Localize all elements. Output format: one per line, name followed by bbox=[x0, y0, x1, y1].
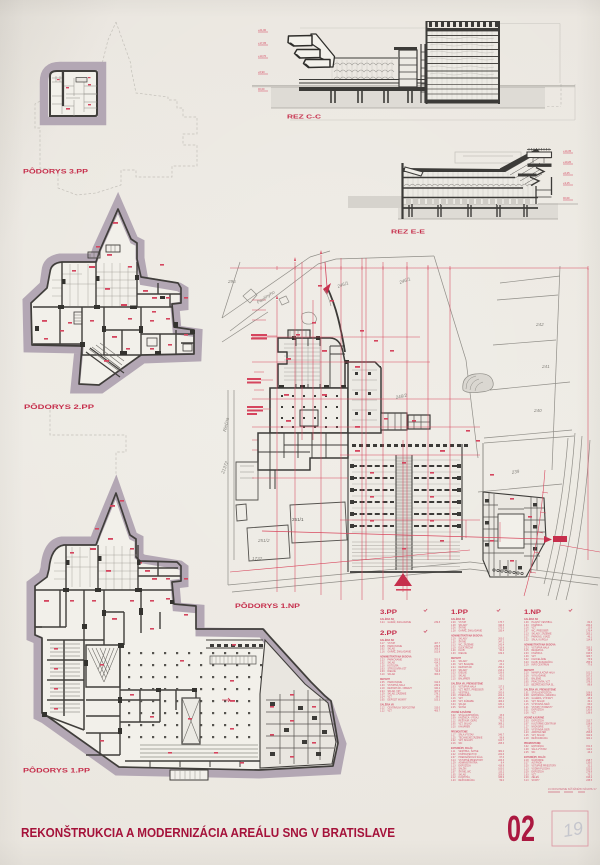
svg-text:NÁDVORIE: NÁDVORIE bbox=[532, 759, 544, 762]
svg-text:DIELNE: DIELNE bbox=[388, 671, 397, 673]
svg-text:SKLAD, VZT: SKLAD, VZT bbox=[388, 690, 402, 693]
svg-text:ADMINISTRATÍVNA BUDOVA: ADMINISTRATÍVNA BUDOVA bbox=[451, 635, 483, 638]
svg-text:+13,70: +13,70 bbox=[258, 54, 267, 58]
svg-text:3.21: 3.21 bbox=[524, 710, 529, 712]
svg-text:PÔDORYS 1.NP: PÔDORYS 1.NP bbox=[235, 601, 301, 610]
svg-text:GALÉRIA SO: GALÉRIA SO bbox=[380, 639, 394, 642]
svg-text:EXPOZÍCIA: EXPOZÍCIA bbox=[532, 770, 545, 773]
svg-text:PARKOVANIE: PARKOVANIE bbox=[388, 681, 403, 684]
svg-text:VODNÉ KASÁRNE: VODNÉ KASÁRNE bbox=[524, 717, 545, 720]
svg-text:1.29: 1.29 bbox=[451, 763, 456, 765]
svg-text:SKLAD: SKLAD bbox=[388, 673, 396, 676]
svg-text:268.3: 268.3 bbox=[498, 743, 504, 745]
svg-text:VZT, SKLAD: VZT, SKLAD bbox=[532, 734, 545, 737]
svg-text:2.13: 2.13 bbox=[451, 670, 456, 672]
svg-text:EXTERIÉRY, PALÁC: EXTERIÉRY, PALÁC bbox=[524, 756, 546, 759]
svg-text:3.01: 3.01 bbox=[451, 692, 456, 694]
svg-text:241: 241 bbox=[541, 364, 550, 369]
svg-text:2.16: 2.16 bbox=[451, 743, 456, 745]
svg-text:222.1: 222.1 bbox=[498, 695, 504, 697]
svg-text:VODNÉ KASÁRNE: VODNÉ KASÁRNE bbox=[451, 711, 472, 714]
svg-text:3.05: 3.05 bbox=[380, 646, 385, 648]
svg-text:DEPOZIT: DEPOZIT bbox=[451, 658, 462, 660]
svg-text:+10,20: +10,20 bbox=[563, 160, 572, 164]
svg-text:SKLADY: SKLADY bbox=[459, 660, 469, 663]
svg-text:WC: WC bbox=[532, 752, 536, 754]
svg-text:246/1: 246/1 bbox=[398, 276, 412, 285]
svg-text:2.03: 2.03 bbox=[524, 653, 529, 655]
svg-text:1.08: 1.08 bbox=[451, 701, 456, 703]
svg-text:VZT, ZÁZEMIE: VZT, ZÁZEMIE bbox=[459, 700, 475, 703]
svg-text:2.24: 2.24 bbox=[451, 667, 456, 669]
svg-text:76.3: 76.3 bbox=[500, 721, 505, 723]
svg-text:DEPOZITÁR: DEPOZITÁR bbox=[459, 666, 472, 669]
svg-text:336.9: 336.9 bbox=[498, 777, 504, 779]
svg-text:196.5: 196.5 bbox=[586, 653, 592, 655]
svg-text:167.5: 167.5 bbox=[498, 707, 504, 709]
svg-text:VZT: VZT bbox=[459, 698, 464, 700]
svg-text:251/2: 251/2 bbox=[257, 538, 270, 543]
svg-text:63.0: 63.0 bbox=[588, 704, 593, 706]
svg-text:INFO CENTRUM: INFO CENTRUM bbox=[532, 665, 550, 667]
svg-text:240: 240 bbox=[533, 408, 542, 413]
svg-text:296.1: 296.1 bbox=[498, 667, 504, 669]
svg-text:SKLADY: SKLADY bbox=[459, 638, 469, 641]
svg-text:KLUB: KLUB bbox=[459, 650, 465, 652]
svg-text:326.7: 326.7 bbox=[586, 656, 592, 658]
svg-text:REŠTAURÁCIA: REŠTAURÁCIA bbox=[459, 779, 476, 782]
svg-text:2.19: 2.19 bbox=[524, 665, 529, 667]
svg-text:VZT: VZT bbox=[532, 656, 537, 658]
svg-text:2.03: 2.03 bbox=[524, 721, 529, 723]
svg-text:19 ODOVZDANIE SÚŤAŽNÉHO NÁVR: 19 ODOVZDANIE SÚŤAŽNÉHO NÁVRHU 17 bbox=[548, 788, 597, 791]
svg-text:46.1: 46.1 bbox=[588, 636, 593, 638]
svg-text:2.07: 2.07 bbox=[524, 631, 529, 633]
svg-text:1.01: 1.01 bbox=[524, 692, 529, 694]
svg-text:MANIPULAČNÁ HALA: MANIPULAČNÁ HALA bbox=[532, 672, 556, 675]
svg-text:1.16: 1.16 bbox=[451, 698, 456, 700]
svg-text:RECEPCIA: RECEPCIA bbox=[532, 649, 544, 652]
svg-text:135.0: 135.0 bbox=[586, 763, 592, 765]
svg-text:1.22: 1.22 bbox=[380, 710, 385, 712]
svg-text:KAVIÁREŇ: KAVIÁREŇ bbox=[459, 725, 471, 728]
svg-text:216.8: 216.8 bbox=[498, 647, 504, 649]
svg-text:3.15: 3.15 bbox=[451, 676, 456, 678]
svg-text:PARKING, VJAZD: PARKING, VJAZD bbox=[532, 635, 551, 638]
svg-text:EXPOZÍCIA: EXPOZÍCIA bbox=[459, 765, 472, 768]
svg-text:GARÁŽ, ZAKLADANIE: GARÁŽ, ZAKLADANIE bbox=[459, 630, 483, 633]
svg-text:97.1: 97.1 bbox=[588, 726, 593, 728]
svg-text:GALÉRIA SO: GALÉRIA SO bbox=[524, 618, 538, 621]
svg-text:3.24: 3.24 bbox=[380, 697, 385, 699]
svg-text:EXPOZÍCIA: EXPOZÍCIA bbox=[532, 720, 545, 723]
svg-text:2.19: 2.19 bbox=[451, 639, 456, 641]
svg-text:WC: WC bbox=[459, 743, 463, 745]
svg-text:1.13: 1.13 bbox=[524, 769, 529, 771]
svg-text:3.01: 3.01 bbox=[524, 679, 529, 681]
svg-text:163.2: 163.2 bbox=[434, 668, 440, 670]
svg-text:3.20: 3.20 bbox=[451, 726, 456, 728]
svg-text:2.09: 2.09 bbox=[524, 729, 529, 731]
svg-text:2.26: 2.26 bbox=[451, 628, 456, 630]
svg-text:KNIŽNICA: KNIŽNICA bbox=[532, 624, 543, 627]
svg-text:2.18: 2.18 bbox=[524, 738, 529, 740]
svg-text:73.9: 73.9 bbox=[588, 659, 593, 661]
svg-text:253.8: 253.8 bbox=[586, 732, 592, 734]
svg-text:308.3: 308.3 bbox=[434, 649, 440, 651]
svg-text:SÁLA VÝSTAV: SÁLA VÝSTAV bbox=[459, 733, 475, 736]
svg-text:1.NP: 1.NP bbox=[524, 609, 542, 616]
svg-text:169.3: 169.3 bbox=[498, 653, 504, 655]
svg-text:320.3: 320.3 bbox=[586, 679, 592, 681]
svg-text:NÁDVORIE: NÁDVORIE bbox=[532, 725, 544, 728]
svg-text:VSTUPNÁ HALA: VSTUPNÁ HALA bbox=[532, 646, 550, 649]
svg-text:KUCHYŇA: KUCHYŇA bbox=[459, 776, 471, 779]
svg-text:2.12: 2.12 bbox=[451, 777, 456, 779]
svg-text:151.3: 151.3 bbox=[586, 746, 592, 748]
svg-text:DIELNE: DIELNE bbox=[459, 653, 468, 655]
svg-text:369.1: 369.1 bbox=[498, 724, 504, 726]
svg-text:2.19: 2.19 bbox=[451, 647, 456, 649]
svg-text:396.1: 396.1 bbox=[498, 718, 504, 720]
svg-text:82.3: 82.3 bbox=[588, 622, 593, 624]
svg-text:1.21: 1.21 bbox=[451, 661, 456, 663]
svg-text:+21,00: +21,00 bbox=[258, 28, 267, 32]
svg-text:ŠATŇA: ŠATŇA bbox=[459, 706, 467, 709]
svg-text:KANCELÁRIE: KANCELÁRIE bbox=[532, 658, 547, 661]
svg-text:2.10: 2.10 bbox=[524, 673, 529, 675]
svg-text:322.1: 322.1 bbox=[586, 738, 592, 740]
svg-text:VODNÁ PLOCHA: VODNÁ PLOCHA bbox=[532, 768, 551, 771]
svg-text:176.4: 176.4 bbox=[586, 631, 592, 633]
svg-text:108.6: 108.6 bbox=[586, 692, 592, 694]
svg-text:242.4: 242.4 bbox=[498, 644, 504, 646]
svg-text:EXPOZÍCIA - GRAFIKA: EXPOZÍCIA - GRAFIKA bbox=[532, 694, 557, 697]
svg-text:VSTUPNÁ HALA: VSTUPNÁ HALA bbox=[459, 686, 477, 689]
svg-text:2.20: 2.20 bbox=[451, 695, 456, 697]
svg-text:±0,00: ±0,00 bbox=[563, 196, 570, 200]
svg-text:VSTUPNÉ PRIESTORY: VSTUPNÉ PRIESTORY bbox=[532, 765, 557, 768]
svg-text:KNIŽNICA - VÝDAJ: KNIŽNICA - VÝDAJ bbox=[459, 717, 479, 720]
svg-text:15.6: 15.6 bbox=[500, 715, 505, 717]
svg-text:GALÉRIA VK, PREMOSTENIE: GALÉRIA VK, PREMOSTENIE bbox=[451, 683, 484, 686]
svg-text:SKLAD: SKLAD bbox=[388, 662, 396, 665]
svg-text:2.29: 2.29 bbox=[524, 777, 529, 779]
svg-text:2.22: 2.22 bbox=[451, 740, 456, 742]
svg-text:VZT: VZT bbox=[388, 697, 393, 699]
svg-text:38.0: 38.0 bbox=[436, 697, 441, 699]
svg-text:1.19: 1.19 bbox=[451, 769, 456, 771]
svg-text:2.07: 2.07 bbox=[451, 771, 456, 773]
svg-text:1.27: 1.27 bbox=[524, 726, 529, 728]
svg-text:DIELNE: DIELNE bbox=[459, 673, 468, 675]
svg-text:KOTOLŇA: KOTOLŇA bbox=[388, 664, 399, 667]
svg-text:VZT, REŠT., PREDSIEŇ: VZT, REŠT., PREDSIEŇ bbox=[459, 688, 484, 691]
svg-text:2.09: 2.09 bbox=[451, 718, 456, 720]
svg-text:2.22: 2.22 bbox=[524, 639, 529, 641]
svg-text:279.9: 279.9 bbox=[586, 771, 592, 773]
svg-text:32.1: 32.1 bbox=[588, 701, 593, 703]
svg-text:2.23: 2.23 bbox=[524, 647, 529, 649]
svg-text:34.7: 34.7 bbox=[500, 689, 505, 691]
svg-text:3.23: 3.23 bbox=[451, 673, 456, 675]
svg-text:48.6: 48.6 bbox=[588, 698, 593, 700]
svg-text:1.28: 1.28 bbox=[451, 625, 456, 627]
svg-text:246.7: 246.7 bbox=[498, 734, 504, 736]
svg-text:PRACOVŇA, VZT: PRACOVŇA, VZT bbox=[532, 680, 551, 683]
svg-text:1.PP: 1.PP bbox=[451, 609, 469, 616]
svg-text:2.15: 2.15 bbox=[524, 684, 529, 686]
svg-text:1.04: 1.04 bbox=[524, 625, 529, 627]
svg-text:1.13: 1.13 bbox=[451, 766, 456, 768]
svg-text:REKONŠTRUKCIA A MODERNIZÁCIA A: REKONŠTRUKCIA A MODERNIZÁCIA AREÁLU SNG … bbox=[21, 825, 395, 840]
svg-text:3.05: 3.05 bbox=[524, 681, 529, 683]
svg-text:VZT: VZT bbox=[532, 774, 537, 776]
svg-text:PREMOSTENIE: PREMOSTENIE bbox=[451, 732, 468, 734]
svg-text:3.07: 3.07 bbox=[524, 724, 529, 726]
svg-text:2.03: 2.03 bbox=[380, 671, 385, 673]
svg-text:3.15: 3.15 bbox=[524, 650, 529, 652]
svg-text:VESTIBUL, ŠATNE: VESTIBUL, ŠATNE bbox=[459, 750, 479, 753]
svg-text:112.0: 112.0 bbox=[586, 749, 592, 751]
svg-text:43.4: 43.4 bbox=[588, 752, 593, 754]
svg-text:SKLAD: SKLAD bbox=[388, 648, 396, 651]
svg-text:1.20: 1.20 bbox=[451, 642, 456, 644]
svg-text:1.29: 1.29 bbox=[380, 694, 385, 696]
svg-text:414.2: 414.2 bbox=[434, 663, 440, 665]
svg-text:3.22: 3.22 bbox=[451, 715, 456, 717]
svg-text:3.23: 3.23 bbox=[524, 662, 529, 664]
svg-text:242: 242 bbox=[535, 322, 544, 327]
svg-text:PÔDORYS 2.PP: PÔDORYS 2.PP bbox=[24, 402, 95, 411]
svg-text:PÔDORYS 1.PP: PÔDORYS 1.PP bbox=[23, 766, 91, 775]
svg-text:180.1: 180.1 bbox=[498, 704, 504, 706]
svg-text:2.05: 2.05 bbox=[380, 682, 385, 684]
svg-text:2.12: 2.12 bbox=[380, 708, 385, 710]
svg-text:238.5: 238.5 bbox=[586, 780, 592, 782]
svg-text:23.1: 23.1 bbox=[500, 664, 505, 666]
svg-text:GARÁŽ, ZAKLADANIE: GARÁŽ, ZAKLADANIE bbox=[388, 651, 412, 654]
svg-text:VZT, SKLADY: VZT, SKLADY bbox=[459, 739, 474, 742]
svg-text:1.16: 1.16 bbox=[380, 652, 385, 654]
svg-text:GALÉRIA, VÝSTAVY: GALÉRIA, VÝSTAVY bbox=[532, 697, 554, 700]
svg-text:ADMINISTRATÍVNA BUDOVA: ADMINISTRATÍVNA BUDOVA bbox=[380, 656, 412, 659]
svg-text:1.26: 1.26 bbox=[524, 698, 529, 700]
svg-text:STÁLA EXPOZÍCIA: STÁLA EXPOZÍCIA bbox=[532, 691, 553, 694]
svg-text:EXPOZÍCIA: EXPOZÍCIA bbox=[532, 745, 545, 748]
svg-text:1.09: 1.09 bbox=[524, 622, 529, 624]
svg-text:PREMOSTENIE: PREMOSTENIE bbox=[524, 743, 541, 745]
svg-text:419.9: 419.9 bbox=[498, 766, 504, 768]
svg-text:2.29: 2.29 bbox=[451, 622, 456, 624]
svg-text:31.2: 31.2 bbox=[588, 766, 593, 768]
svg-text:PÔDORYS 3.PP: PÔDORYS 3.PP bbox=[23, 167, 89, 176]
svg-text:342.9: 342.9 bbox=[586, 735, 592, 737]
svg-text:19: 19 bbox=[561, 818, 584, 841]
svg-text:±0,00: ±0,00 bbox=[258, 87, 265, 91]
svg-text:3.02: 3.02 bbox=[380, 649, 385, 651]
svg-text:130.6: 130.6 bbox=[586, 710, 592, 712]
svg-text:+6,90: +6,90 bbox=[258, 70, 265, 74]
svg-text:1.20: 1.20 bbox=[380, 665, 385, 667]
svg-text:295: 295 bbox=[227, 279, 236, 284]
svg-text:3.24: 3.24 bbox=[380, 622, 385, 624]
svg-text:50.4: 50.4 bbox=[500, 650, 505, 652]
svg-text:2.23: 2.23 bbox=[380, 660, 385, 662]
svg-text:02: 02 bbox=[507, 808, 535, 849]
svg-text:12.9: 12.9 bbox=[588, 628, 593, 630]
svg-text:98.8: 98.8 bbox=[500, 737, 505, 739]
svg-text:VSTUPY, PODESTY: VSTUPY, PODESTY bbox=[532, 707, 554, 709]
svg-text:152.5: 152.5 bbox=[586, 769, 592, 771]
svg-text:379.3: 379.3 bbox=[586, 681, 592, 683]
svg-text:PREDNÁŠKOVÁ SÁLA: PREDNÁŠKOVÁ SÁLA bbox=[459, 756, 483, 759]
svg-text:255.9: 255.9 bbox=[586, 662, 592, 664]
svg-text:3.13: 3.13 bbox=[451, 644, 456, 646]
svg-text:115.2: 115.2 bbox=[498, 771, 504, 773]
svg-text:1.12: 1.12 bbox=[451, 721, 456, 723]
svg-text:ŠATNE: ŠATNE bbox=[459, 627, 467, 630]
svg-text:3.14: 3.14 bbox=[451, 760, 456, 762]
svg-text:SOCHY: SOCHY bbox=[532, 780, 541, 782]
svg-text:270.4: 270.4 bbox=[498, 661, 504, 663]
svg-text:3.05: 3.05 bbox=[380, 700, 385, 702]
svg-text:3.17: 3.17 bbox=[524, 636, 529, 638]
svg-text:+17,05: +17,05 bbox=[258, 41, 267, 45]
svg-text:209.9: 209.9 bbox=[498, 774, 504, 776]
svg-text:3.10: 3.10 bbox=[380, 674, 385, 676]
svg-text:SKLAD: SKLAD bbox=[459, 773, 467, 776]
svg-text:2.24: 2.24 bbox=[380, 691, 385, 693]
svg-text:GALÉRIA VK, PREMOSTENIE: GALÉRIA VK, PREMOSTENIE bbox=[524, 688, 557, 691]
svg-text:246/1: 246/1 bbox=[336, 280, 350, 289]
svg-text:3.26: 3.26 bbox=[524, 676, 529, 678]
svg-text:2.25: 2.25 bbox=[451, 707, 456, 709]
svg-text:234.4: 234.4 bbox=[586, 625, 592, 627]
svg-text:333.3: 333.3 bbox=[586, 647, 592, 649]
svg-text:SKLADY: SKLADY bbox=[459, 624, 469, 627]
svg-text:SÁLA VÝSTAV: SÁLA VÝSTAV bbox=[532, 748, 548, 751]
svg-text:3.17: 3.17 bbox=[380, 643, 385, 645]
svg-text:VSTUPNÉ PRIESTORY: VSTUPNÉ PRIESTORY bbox=[459, 759, 484, 762]
svg-text:KULTÚRNE CENTRUM: KULTÚRNE CENTRUM bbox=[532, 723, 556, 726]
svg-text:114.9: 114.9 bbox=[586, 639, 592, 641]
svg-text:1.17: 1.17 bbox=[451, 734, 456, 736]
svg-text:PARKOVANIE: PARKOVANIE bbox=[388, 659, 403, 662]
svg-text:101.2: 101.2 bbox=[586, 673, 592, 675]
svg-text:ZELEŇ: ZELEŇ bbox=[532, 776, 540, 779]
svg-text:213.1: 213.1 bbox=[498, 670, 504, 672]
svg-text:1.08: 1.08 bbox=[524, 749, 529, 751]
svg-text:358.0: 358.0 bbox=[498, 679, 504, 681]
svg-text:REZ E-E: REZ E-E bbox=[391, 230, 425, 236]
svg-text:AMFITEÁTER: AMFITEÁTER bbox=[532, 731, 547, 734]
svg-text:59.0: 59.0 bbox=[500, 780, 505, 782]
svg-text:2.18: 2.18 bbox=[524, 760, 529, 762]
svg-text:1.25: 1.25 bbox=[524, 735, 529, 737]
svg-text:1.25: 1.25 bbox=[451, 737, 456, 739]
svg-text:VSTUPNÁ HALA: VSTUPNÁ HALA bbox=[388, 684, 406, 687]
svg-text:SKLAD: SKLAD bbox=[459, 703, 467, 706]
svg-text:347.1: 347.1 bbox=[498, 642, 504, 644]
svg-text:SKLAD: SKLAD bbox=[459, 675, 467, 678]
svg-text:327.0: 327.0 bbox=[434, 691, 440, 693]
svg-text:PARKOVANIE: PARKOVANIE bbox=[388, 645, 403, 648]
svg-text:2.13: 2.13 bbox=[524, 634, 529, 636]
svg-text:CENTRÁLNY DEPOZITÁR: CENTRÁLNY DEPOZITÁR bbox=[388, 707, 416, 710]
svg-text:ADMINISTRATÍVA: ADMINISTRATÍVA bbox=[459, 762, 478, 765]
svg-text:ADMINISTRATÍVNA BUDOVA: ADMINISTRATÍVNA BUDOVA bbox=[524, 643, 556, 646]
svg-text:2.16: 2.16 bbox=[524, 628, 529, 630]
svg-text:VSTUP: VSTUP bbox=[459, 622, 467, 624]
svg-text:158.8: 158.8 bbox=[586, 724, 592, 726]
svg-text:HLAVNÝ VESTIBUL: HLAVNÝ VESTIBUL bbox=[532, 621, 553, 624]
svg-text:VZT, SKLAD: VZT, SKLAD bbox=[459, 723, 472, 726]
svg-text:3.04: 3.04 bbox=[451, 704, 456, 706]
svg-text:1.03: 1.03 bbox=[451, 653, 456, 655]
svg-text:SKLADY: SKLADY bbox=[459, 669, 469, 672]
svg-text:2.15: 2.15 bbox=[451, 679, 456, 681]
svg-text:3.03: 3.03 bbox=[380, 668, 385, 670]
svg-text:1.11: 1.11 bbox=[451, 751, 456, 753]
svg-text:2.25: 2.25 bbox=[524, 752, 529, 754]
svg-text:205.1: 205.1 bbox=[586, 634, 592, 636]
svg-text:67.6: 67.6 bbox=[500, 757, 505, 759]
svg-text:406.4: 406.4 bbox=[498, 701, 504, 703]
svg-text:175.7: 175.7 bbox=[498, 622, 504, 624]
svg-text:3.03: 3.03 bbox=[451, 687, 456, 689]
svg-text:139.6: 139.6 bbox=[586, 713, 592, 715]
svg-text:163.0: 163.0 bbox=[498, 769, 504, 771]
svg-text:239: 239 bbox=[510, 469, 520, 476]
svg-text:KNÍHKUPECTVO: KNÍHKUPECTVO bbox=[459, 753, 477, 756]
svg-text:72.3: 72.3 bbox=[588, 729, 593, 731]
svg-text:363.0: 363.0 bbox=[434, 674, 440, 676]
svg-text:1.09: 1.09 bbox=[451, 664, 456, 666]
svg-text:156.6: 156.6 bbox=[498, 673, 504, 675]
svg-text:STÁLA EXPOZÍCIA: STÁLA EXPOZÍCIA bbox=[459, 714, 480, 717]
svg-text:GALÉRIA SO: GALÉRIA SO bbox=[380, 618, 394, 621]
svg-text:ŠATNE: ŠATNE bbox=[459, 641, 467, 644]
svg-text:EXPOZÍCIA: EXPOZÍCIA bbox=[532, 709, 545, 712]
svg-text:105.3: 105.3 bbox=[434, 700, 440, 702]
svg-text:1.28: 1.28 bbox=[451, 631, 456, 633]
svg-text:1.15: 1.15 bbox=[524, 704, 529, 706]
svg-text:Riečna: Riečna bbox=[222, 417, 230, 432]
svg-text:REŠTAUR. DEPO: REŠTAUR. DEPO bbox=[459, 720, 478, 723]
svg-text:BEZPEČNOSTNÁ SL.: BEZPEČNOSTNÁ SL. bbox=[532, 683, 555, 686]
svg-text:VESTIBUL: VESTIBUL bbox=[459, 692, 471, 694]
svg-text:2.02: 2.02 bbox=[380, 663, 385, 665]
svg-text:2.08: 2.08 bbox=[524, 695, 529, 697]
svg-text:1.23: 1.23 bbox=[524, 732, 529, 734]
svg-text:DEPOZIT MOKRÝ: DEPOZIT MOKRÝ bbox=[388, 699, 407, 702]
svg-text:3.02: 3.02 bbox=[524, 746, 529, 748]
svg-text:VSTUP: VSTUP bbox=[388, 643, 396, 645]
svg-text:239.8: 239.8 bbox=[434, 622, 440, 624]
svg-text:2.18: 2.18 bbox=[380, 688, 385, 690]
svg-text:KLUB, ZASADAČKA: KLUB, ZASADAČKA bbox=[532, 661, 554, 664]
svg-text:ELEKTRIČNÁ: ELEKTRIČNÁ bbox=[459, 646, 474, 649]
svg-text:1.21: 1.21 bbox=[524, 701, 529, 703]
svg-text:DEPOZIT: DEPOZIT bbox=[524, 670, 535, 672]
svg-text:406.7: 406.7 bbox=[434, 710, 440, 712]
svg-text:1.09: 1.09 bbox=[524, 656, 529, 658]
svg-text:239.8: 239.8 bbox=[434, 646, 440, 648]
svg-text:WC, ZÁZEMIE: WC, ZÁZEMIE bbox=[459, 643, 475, 646]
svg-text:77.6: 77.6 bbox=[588, 665, 593, 667]
svg-text:278.1: 278.1 bbox=[434, 694, 440, 696]
